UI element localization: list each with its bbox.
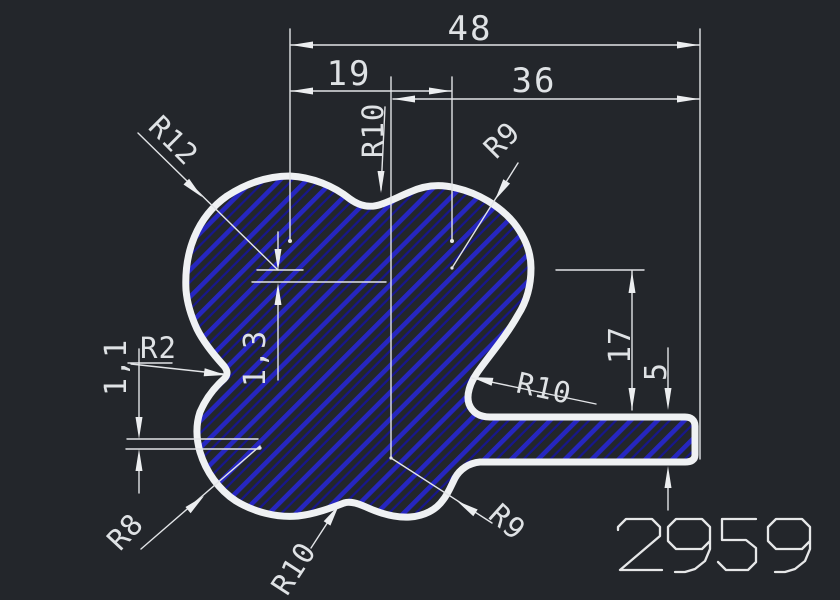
arrow-48-right bbox=[677, 42, 699, 49]
part-number-digit bbox=[668, 519, 710, 572]
radius-text-r10-bottom: R10 bbox=[264, 536, 323, 600]
radius-text-r8: R8 bbox=[100, 507, 150, 557]
part-number bbox=[618, 519, 810, 572]
radius-text-r10-top: R10 bbox=[356, 103, 390, 158]
arrow-5-top bbox=[665, 388, 672, 410]
radius-text-r12: R12 bbox=[142, 109, 205, 172]
point-left-lobe bbox=[288, 239, 292, 243]
dim-text-17: 17 bbox=[603, 326, 638, 364]
point-centerline-end bbox=[389, 456, 392, 459]
arrow-r10-top bbox=[378, 171, 385, 193]
part-number-digit bbox=[768, 519, 810, 572]
dim-text-5: 5 bbox=[639, 362, 674, 381]
part-number-digit bbox=[618, 519, 662, 570]
arrow-5-bottom bbox=[665, 466, 672, 488]
arrow-48-left bbox=[291, 42, 313, 49]
arrow-r8 bbox=[186, 496, 205, 513]
cad-drawing: 48 19 36 17 5 1,3 1,1 R12 R10 R9 R2 R10 … bbox=[0, 0, 840, 600]
dim-text-36: 36 bbox=[512, 61, 557, 101]
part-number-digit bbox=[718, 519, 756, 570]
point-r8-center bbox=[258, 446, 261, 449]
point-r9-center bbox=[450, 266, 453, 269]
arrow-r9-bottom bbox=[457, 501, 478, 516]
arrow-19-left bbox=[291, 88, 313, 95]
arrow-11-top bbox=[136, 417, 143, 439]
cad-canvas[interactable]: 48 19 36 17 5 1,3 1,1 R12 R10 R9 R2 R10 … bbox=[0, 0, 840, 600]
radius-text-r2: R2 bbox=[140, 331, 177, 365]
dim-text-1-3: 1,3 bbox=[238, 330, 273, 387]
point-right-lobe bbox=[450, 239, 454, 243]
radius-text-r9-bottom: R9 bbox=[482, 497, 532, 547]
arrow-36-right bbox=[677, 96, 699, 103]
arrow-36-left bbox=[393, 96, 415, 103]
dim-text-19: 19 bbox=[327, 54, 372, 94]
dim-text-1-1: 1,1 bbox=[99, 339, 134, 396]
radius-text-r10-right: R10 bbox=[513, 366, 574, 411]
arrow-r9-top bbox=[495, 179, 510, 200]
arrow-11-bottom bbox=[136, 449, 143, 471]
arrow-17-bottom bbox=[629, 388, 636, 410]
dim-text-48: 48 bbox=[448, 9, 493, 49]
arrow-r12 bbox=[184, 179, 203, 197]
arrow-17-top bbox=[629, 271, 636, 293]
radius-text-r9-top: R9 bbox=[477, 115, 527, 165]
arrow-19-right bbox=[429, 88, 451, 95]
